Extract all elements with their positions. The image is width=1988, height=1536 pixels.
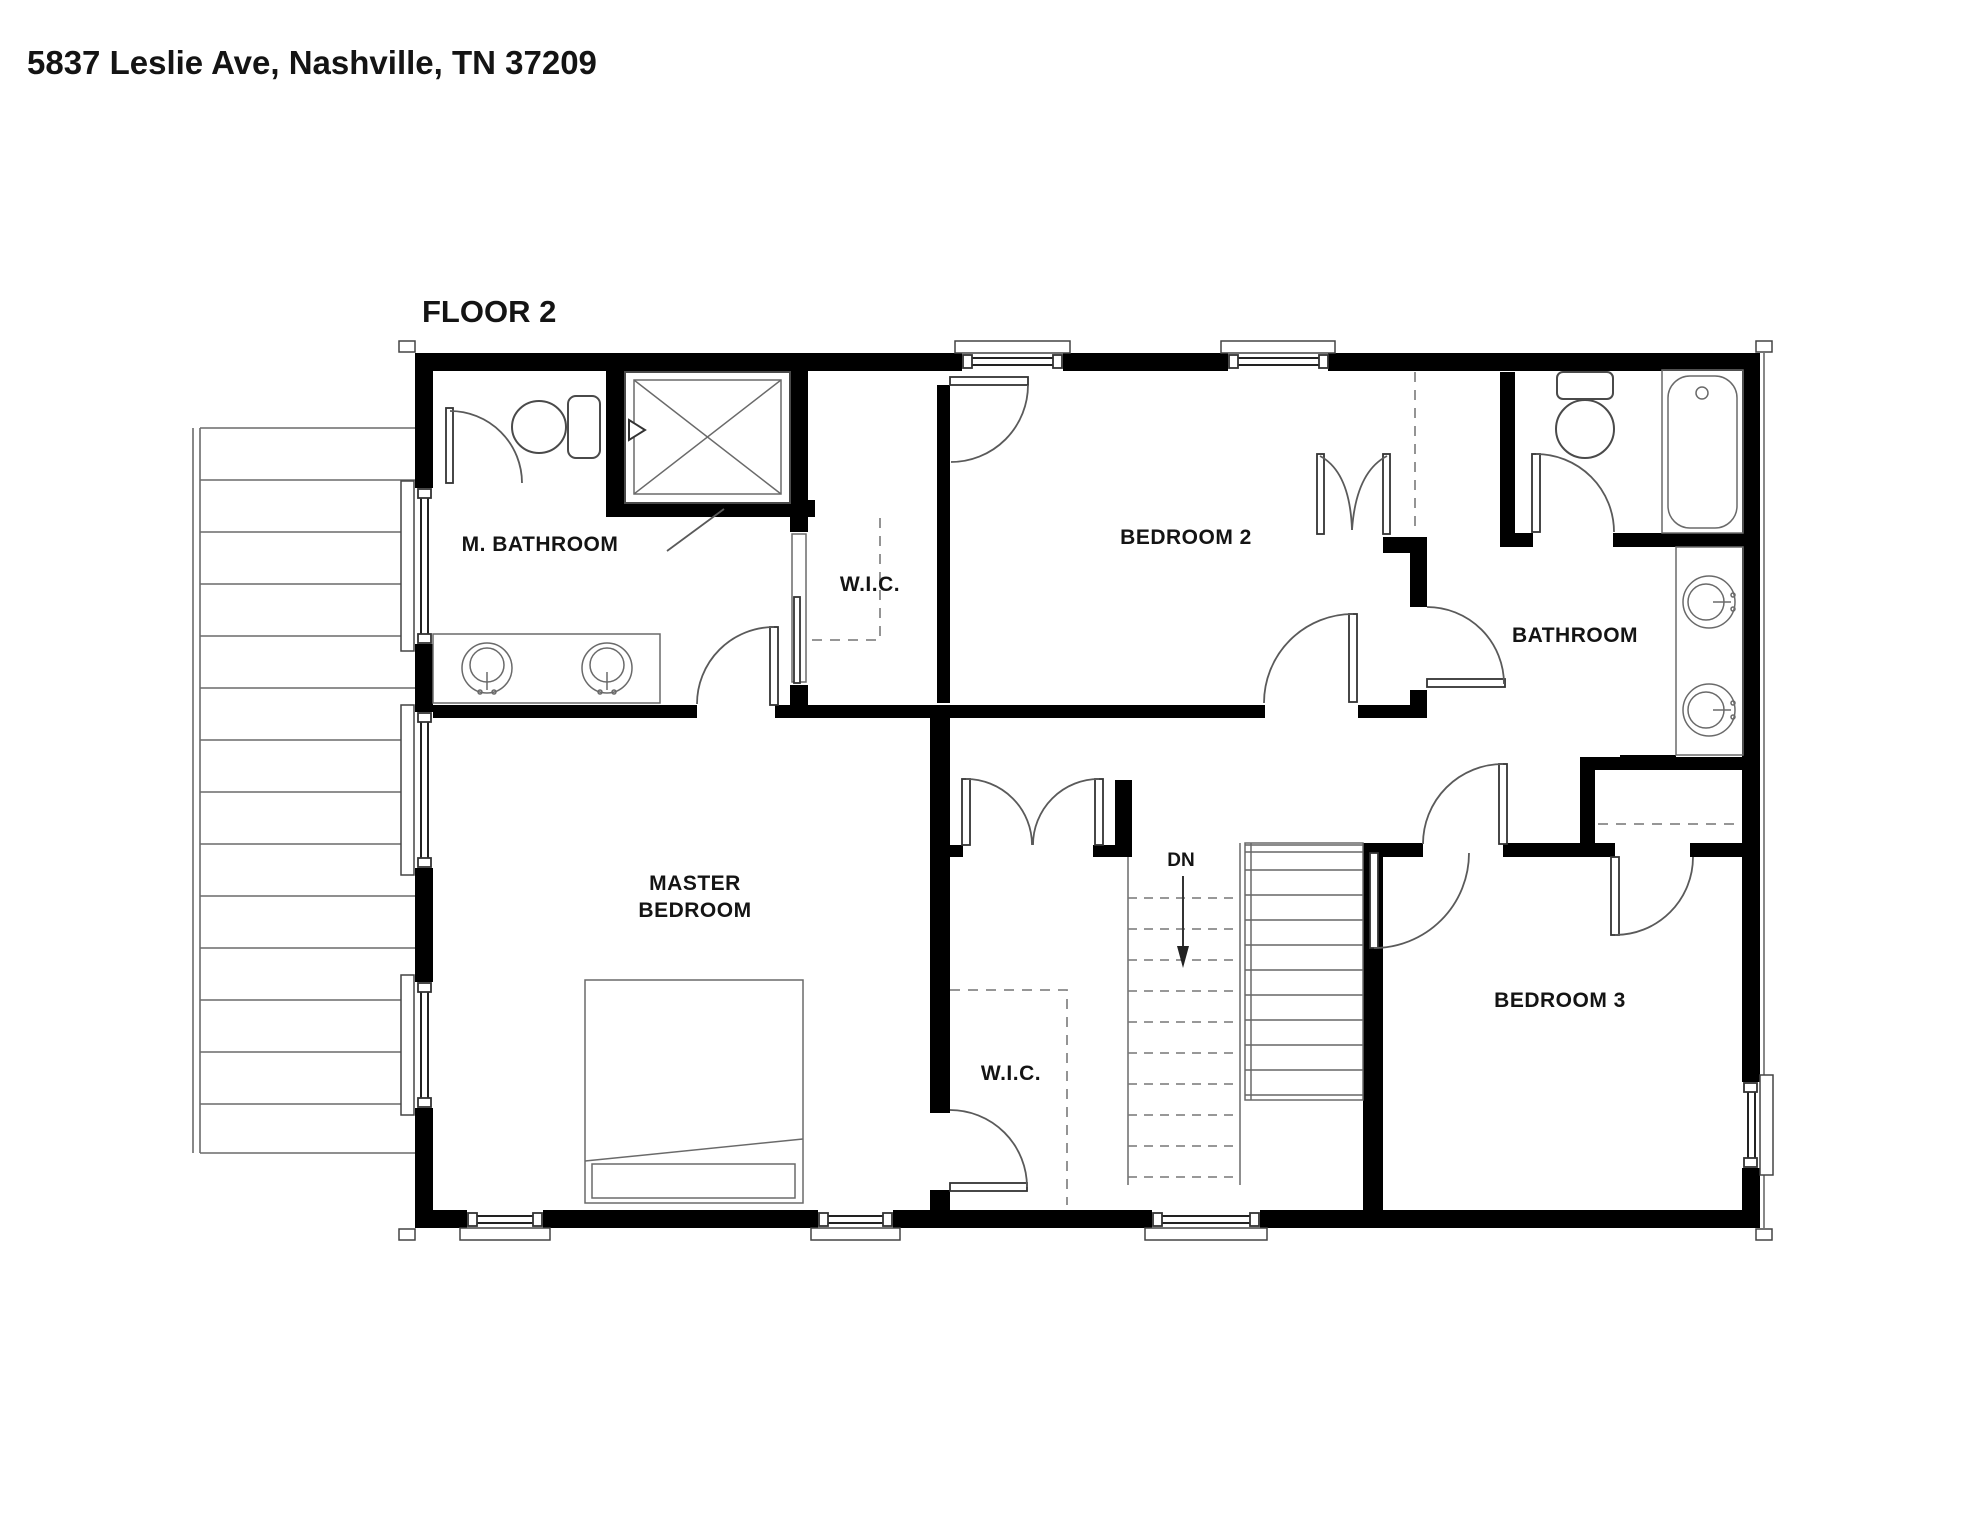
- down-arrow-icon: [1177, 946, 1189, 968]
- vanity-master: [433, 634, 660, 703]
- window-top-2: [1221, 341, 1335, 372]
- door-bedroom2-north: [950, 377, 1028, 462]
- door-hall-nook: [1370, 853, 1469, 948]
- window-right-1: [1741, 1075, 1773, 1175]
- staircase: [1128, 843, 1363, 1185]
- window-bottom-2: [811, 1209, 900, 1240]
- deck-planks: [200, 480, 415, 1104]
- room-label-bathroom: BATHROOM: [1512, 624, 1638, 647]
- corner-tick: [1756, 341, 1772, 352]
- vanity-hall: [1676, 547, 1743, 755]
- window-bottom-3: [1145, 1209, 1267, 1240]
- door-bedroom2-entry: [1264, 614, 1357, 703]
- window-top-1: [955, 341, 1070, 372]
- toilet-hall: [1556, 372, 1614, 458]
- floor-plan-drawing: 5837 Leslie Ave, Nashville, TN 37209 FLO…: [0, 0, 1988, 1536]
- stairs-down-arrow: [1177, 876, 1189, 968]
- corner-tick: [399, 1229, 415, 1240]
- double-door-bedroom2-closet: [1317, 454, 1390, 534]
- room-label-bedroom2: BEDROOM 2: [1120, 526, 1252, 549]
- room-label-master-bathroom: M. BATHROOM: [462, 533, 619, 556]
- room-labels: M. BATHROOM W.I.C. BEDROOM 2 BATHROOM MA…: [462, 526, 1638, 1085]
- bed: [585, 980, 803, 1203]
- pocket-door-wic-upper: [792, 534, 806, 683]
- door-bathroom-entry: [1427, 607, 1505, 687]
- shower: [625, 372, 790, 503]
- room-label-wic-master: W.I.C.: [981, 1062, 1041, 1085]
- door-bedroom3-closet: [1423, 764, 1507, 844]
- room-label-bedroom3: BEDROOM 3: [1494, 989, 1626, 1012]
- window-left-1: [401, 481, 434, 651]
- page-title: 5837 Leslie Ave, Nashville, TN 37209: [27, 44, 597, 81]
- exterior-walls: [399, 341, 1772, 1240]
- room-label-master-bedroom-line1: MASTER: [649, 872, 741, 895]
- window-left-2: [401, 705, 434, 875]
- floor-plan-page: 5837 Leslie Ave, Nashville, TN 37209 FLO…: [0, 0, 1988, 1536]
- door-bathroom-inner: [1532, 454, 1614, 532]
- room-label-wic-upper: W.I.C.: [840, 573, 900, 596]
- door-master-bathroom-left: [446, 408, 522, 483]
- deck: [193, 428, 415, 1153]
- double-door-master-closet: [962, 779, 1103, 845]
- corner-tick: [399, 341, 415, 352]
- window-left-3: [401, 975, 434, 1115]
- bathtub: [1662, 370, 1743, 533]
- fixtures: [433, 370, 1743, 1203]
- corner-tick: [1756, 1229, 1772, 1240]
- window-bottom-1: [460, 1209, 550, 1240]
- stairs-dn-label: DN: [1167, 850, 1194, 871]
- door-bedroom3-entry: [1611, 857, 1693, 935]
- floor-label: FLOOR 2: [422, 294, 556, 329]
- toilet-master: [512, 396, 600, 458]
- room-label-master-bedroom-line2: BEDROOM: [638, 899, 751, 922]
- door-master-bath-entry: [697, 627, 778, 705]
- door-wic-master: [950, 1110, 1027, 1191]
- closet-rod-wic-master: [950, 990, 1067, 1205]
